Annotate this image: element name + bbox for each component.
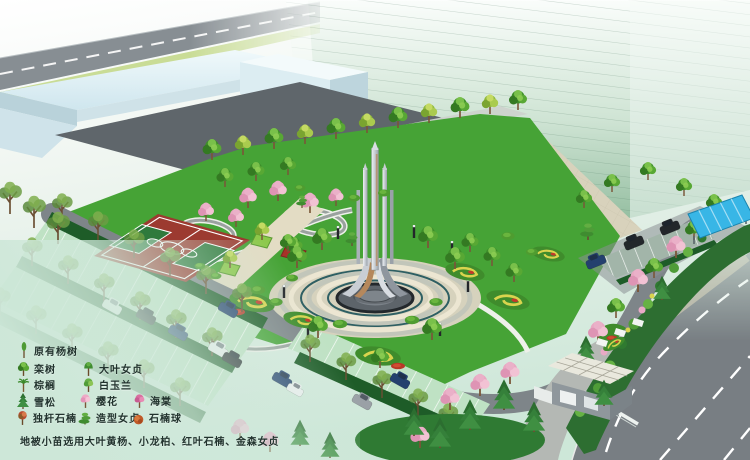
aerial-scene [0,0,750,460]
haze-overlay [0,0,750,135]
corner-haze [0,240,360,460]
landscape-plan-rendering: 原有杨树 栾树 大叶女贞 棕榈 白玉兰 雪松 樱花 海棠 独杆石楠 造型女贞 石… [0,0,750,460]
